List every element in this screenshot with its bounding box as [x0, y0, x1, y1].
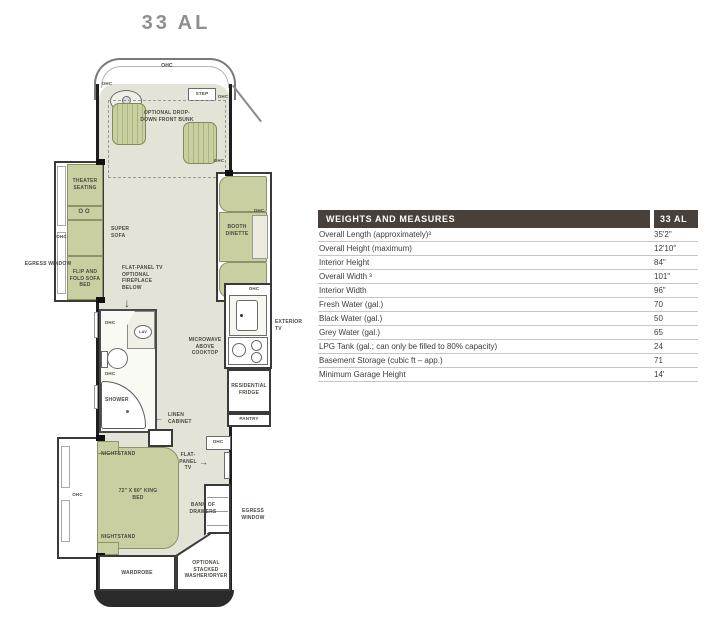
ohc-label-bed: OHC [71, 492, 84, 498]
row-value: 65 [652, 328, 698, 337]
super-sofa-mid [67, 220, 103, 256]
table-row: Interior Height 84" [318, 256, 698, 270]
row-label: Overall Length (approximately)³ [318, 230, 652, 239]
row-value: 70 [652, 300, 698, 309]
ohc-label-bath-mid: OHC [102, 371, 118, 377]
ohc-label-bath-top: OHC [102, 320, 118, 326]
egress-window-left-label: EGRESS WINDOW [22, 261, 74, 268]
linen-cabinet [148, 429, 173, 447]
right-arrow-icon: → [199, 458, 208, 467]
table-row: Overall Width ³ 101" [318, 270, 698, 284]
burner-small-1 [251, 340, 262, 351]
table-header-model: 33 AL [654, 210, 698, 228]
table-row: Grey Water (gal.) 65 [318, 326, 698, 340]
ohc-label-kitchen: OHC [246, 286, 262, 292]
microwave-label: MICROWAVE ABOVE COOKTOP [184, 337, 226, 357]
wardrobe-label: WARDROBE [108, 570, 166, 577]
row-label: Interior Height [318, 258, 652, 267]
burner-small-2 [251, 352, 262, 363]
shower-drain [126, 410, 129, 413]
bed-slide-window-2 [61, 500, 70, 542]
row-label: Fresh Water (gal.) [318, 300, 652, 309]
entry-door-swing [232, 85, 262, 122]
linen-cabinet-label: LINEN CABINET [168, 412, 198, 425]
sofa-slide-window-1 [57, 166, 66, 226]
row-label: Overall Width ³ [318, 272, 652, 281]
cupholders: OO [69, 209, 101, 217]
dinette-bench-top [219, 176, 267, 212]
table-header-title: WEIGHTS AND MEASURES [318, 210, 650, 228]
bed-slide-window-1 [61, 446, 70, 488]
table-row: Minimum Garage Height 14' [318, 368, 698, 382]
table-row: Overall Height (maximum) 12'10" [318, 242, 698, 256]
booth-dinette-label: BOOTH DINETTE [222, 224, 252, 237]
row-value: 14' [652, 370, 698, 379]
table-row: Interior Width 96" [318, 284, 698, 298]
row-value: 101" [652, 272, 698, 281]
slide-marker [96, 159, 105, 165]
super-sofa-label: SUPER SOFA [111, 226, 137, 239]
table-body: Overall Length (approximately)³ 35'2" Ov… [318, 228, 698, 382]
weights-measures-table: WEIGHTS AND MEASURES 33 AL Overall Lengt… [318, 210, 698, 382]
nightstand-top-label: NIGHTSTAND [101, 451, 141, 458]
slide-marker [225, 170, 233, 176]
ohc-label-bedroom: OHC [208, 439, 228, 445]
left-arrow-icon: ← [154, 414, 163, 423]
row-label: Grey Water (gal.) [318, 328, 652, 337]
floor-plan: 33 AL OHC OHC STEP OHC OHC OPTIONAL DROP… [0, 0, 310, 642]
tv-fireplace-label: FLAT-PANEL TV OPTIONAL FIREPLACE BELOW [122, 265, 164, 291]
ohc-label-entry: OHC [215, 94, 231, 100]
row-value: 24 [652, 342, 698, 351]
fridge-label: RESIDENTIAL FRIDGE [229, 383, 269, 396]
brochure-page: 33 AL OHC OHC STEP OHC OHC OPTIONAL DROP… [0, 0, 725, 642]
king-bed-label: 72" X 80" KING BED [115, 488, 161, 501]
row-label: Basement Storage (cubic ft – app.) [318, 356, 652, 365]
table-row: Fresh Water (gal.) 70 [318, 298, 698, 312]
toilet-bowl [107, 348, 128, 369]
bank-of-drawers-label: BANK OF DRAWERS [182, 502, 224, 515]
table-header: WEIGHTS AND MEASURES 33 AL [318, 210, 698, 228]
lav-label: LAV [135, 329, 151, 334]
row-value: 12'10" [652, 244, 698, 253]
front-bunk-label: OPTIONAL DROP-DOWN FRONT BUNK [140, 110, 194, 123]
row-label: Minimum Garage Height [318, 370, 652, 379]
step-label: STEP [189, 91, 215, 97]
flat-panel-tv-label: FLAT-PANEL TV [176, 452, 200, 472]
table-row: LPG Tank (gal.; can only be filled to 80… [318, 340, 698, 354]
ohc-label-sofa: OHC [55, 234, 68, 240]
egress-window-right-label: EGRESS WINDOW [236, 508, 270, 521]
pantry-label: PANTRY [229, 416, 269, 422]
wall-window-2 [94, 385, 98, 409]
drawer-line [207, 525, 228, 526]
row-label: Interior Width [318, 286, 652, 295]
row-value: 71 [652, 356, 698, 365]
flip-fold-label: FLIP AND FOLD SOFA BED [69, 269, 101, 289]
exterior-tv-label: EXTERIOR TV [275, 319, 305, 332]
nightstand-bottom-label: NIGHTSTAND [101, 534, 141, 541]
faucet-dot [240, 314, 243, 317]
plan-title: 33 AL [128, 12, 224, 35]
table-row: Overall Length (approximately)³ 35'2" [318, 228, 698, 242]
drawer-line [207, 497, 228, 498]
shower-label: SHOWER [105, 397, 135, 404]
down-arrow-icon: ↓ [124, 297, 130, 309]
ohc-label-front-left: OHC [99, 81, 115, 87]
table-row: Basement Storage (cubic ft – app.) 71 [318, 354, 698, 368]
row-value: 50 [652, 314, 698, 323]
row-value: 35'2" [652, 230, 698, 239]
theater-seating-label: THEATER SEATING [69, 178, 101, 191]
wall-window-1 [94, 312, 98, 338]
washer-dryer-label: OPTIONAL STACKED WASHER/DRYER [184, 560, 228, 580]
rear-cap [94, 590, 234, 607]
ohc-label-dinette: OHC [251, 208, 267, 214]
row-label: Black Water (gal.) [318, 314, 652, 323]
ohc-label-front-center: OHC [152, 63, 182, 70]
table-row: Black Water (gal.) 50 [318, 312, 698, 326]
row-label: LPG Tank (gal.; can only be filled to 80… [318, 342, 652, 351]
row-value: 96" [652, 286, 698, 295]
dinette-table [252, 215, 268, 259]
row-value: 84" [652, 258, 698, 267]
burner-large [232, 343, 246, 357]
bedroom-tv [224, 452, 230, 479]
slide-marker [96, 297, 105, 303]
slide-marker [96, 435, 105, 441]
row-label: Overall Height (maximum) [318, 244, 652, 253]
